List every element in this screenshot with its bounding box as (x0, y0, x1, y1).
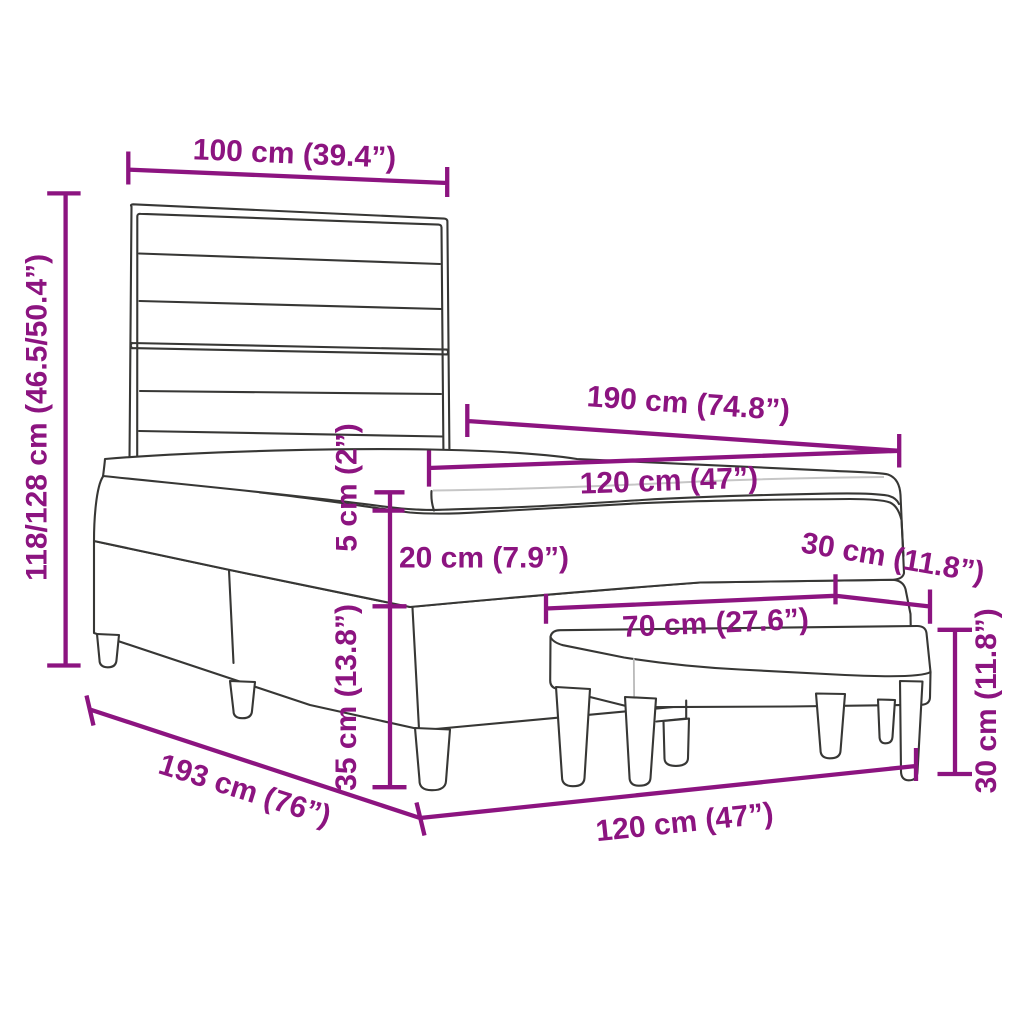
svg-text:5 cm (2”): 5 cm (2”) (331, 423, 364, 551)
svg-text:30 cm (11.8”): 30 cm (11.8”) (970, 608, 1003, 793)
svg-text:118/128 cm (46.5/50.4”): 118/128 cm (46.5/50.4”) (21, 254, 54, 581)
svg-text:120 cm (47”): 120 cm (47”) (579, 461, 758, 500)
svg-text:20 cm (7.9”): 20 cm (7.9”) (399, 542, 569, 575)
svg-text:35 cm (13.8”): 35 cm (13.8”) (330, 604, 363, 791)
